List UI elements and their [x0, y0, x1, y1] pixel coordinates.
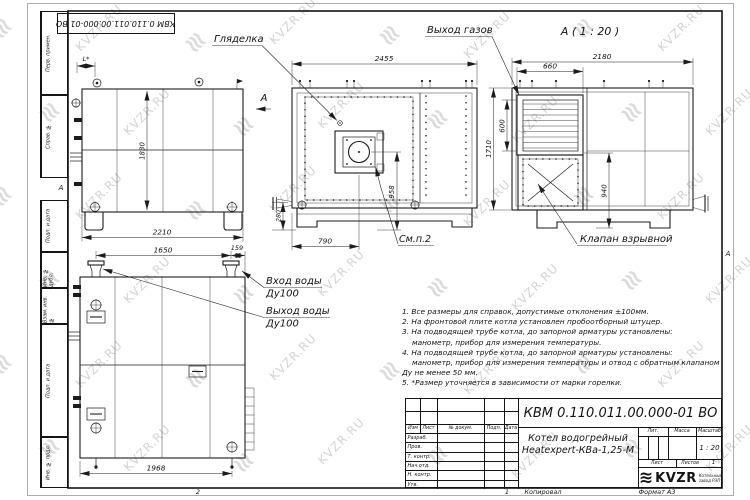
format-label: Формат А3	[638, 488, 675, 496]
dim-label-940: 940	[601, 184, 609, 198]
sheets-value: 1	[704, 459, 723, 467]
sheets-label: Листов	[676, 459, 704, 467]
support-foot	[224, 212, 242, 230]
flange-stub	[273, 197, 292, 210]
drawing-sheet: ≋KVZR.RU≋KVZR.RU≋KVZR.RU≋KVZR.RU≋KVZR.RU…	[0, 0, 750, 500]
logo-coil-icon: ≋	[639, 470, 653, 487]
row-t-kontr: Т. контр.	[408, 452, 438, 461]
dim-label-1710: 1710	[485, 140, 493, 158]
top-studs	[519, 80, 664, 88]
ladder-bracket	[245, 388, 254, 450]
product-name-line2: Heatexpert-КВа-1,25-М	[518, 444, 638, 457]
view-plan: 1650 159 1968 Вход воды Ду100 Выход воды…	[68, 244, 330, 477]
gas-outlet-louver	[517, 95, 583, 155]
dim-label-159: 159	[231, 244, 243, 252]
sheet-label: Лист	[638, 459, 676, 467]
label-explosion-valve: Клапан взрывной	[580, 234, 673, 245]
row-nach-otd: Нач.отд.	[408, 461, 438, 470]
row-n-kontr: Н. контр.	[408, 470, 438, 480]
stamp-vzam-inv: Взам. инв. №	[40, 288, 68, 324]
stamp-sprav-no: Справ. №	[40, 95, 68, 178]
dim-label-1830: 1830	[139, 142, 147, 160]
label-water-outlet-dn: Ду100	[265, 319, 299, 330]
label-sight-glass: Гляделка	[214, 34, 264, 45]
row-razrab: Разраб.	[408, 433, 438, 442]
dim-label-2455: 2455	[375, 54, 394, 63]
view-front: 2455 958 280 790 Гляделка См.п.2	[212, 34, 477, 250]
dim-label-790: 790	[318, 237, 332, 246]
dim-label-L: L*	[83, 55, 91, 63]
section-mark-label: А	[260, 93, 268, 104]
stamp-podp-data-1: Подп. и дата	[40, 200, 68, 252]
logo-subtext-line2: завод РЭП	[699, 478, 721, 483]
col-izm: Изм	[406, 424, 420, 433]
company-logo: ≋ KVZR Котельный завод РЭП	[638, 467, 723, 489]
stamp-perv-primen: Перв. примен.	[40, 11, 68, 95]
dim-label-1650: 1650	[154, 246, 173, 255]
note-line: 1. Все размеры для справок, допустимые о…	[402, 307, 720, 317]
label-see-note: См.п.2	[399, 234, 431, 245]
water-outlet-nozzle	[88, 261, 104, 277]
dim-label-600: 600	[499, 119, 507, 133]
explosion-valve-panel	[518, 155, 583, 210]
col-podp: Подп.	[484, 424, 504, 433]
note-line: Ду не менее 50 мм.	[402, 368, 720, 378]
stamp-podp-data-2: Подп. и дата	[40, 324, 68, 437]
note-line: 3. На подводящей трубе котла, до запорно…	[402, 327, 720, 337]
stamp-inv-podl: Инв. № подл.	[40, 437, 68, 488]
label-water-inlet: Вход воды	[266, 276, 322, 287]
lit-label: Лит.	[638, 427, 668, 436]
zone-marker-right: А	[725, 250, 731, 258]
scale-label: Масштаб	[696, 427, 723, 436]
row-prov: Пров.	[408, 442, 438, 452]
note-line: 4. На подводящей трубе котла, до запорно…	[402, 348, 720, 358]
label-gas-outlet: Выход газов	[427, 25, 493, 36]
note-line: манометр, прибор для измерения температу…	[402, 338, 720, 348]
col-data: Дата	[504, 424, 518, 433]
scale-value: 1 : 20	[696, 436, 723, 459]
note-line: 2. На фронтовой плите котла установлен п…	[402, 317, 720, 327]
view-a-title: А ( 1 : 20 )	[560, 25, 619, 38]
dim-label-2210: 2210	[153, 228, 172, 237]
dim-label-2180: 2180	[593, 52, 612, 61]
notes-block: 1. Все размеры для справок, допустимые о…	[402, 307, 720, 389]
doc-number-rotated: КВМ 0.110.011.00.000-01 ВО	[56, 19, 175, 28]
copy-number: 1	[505, 488, 509, 496]
view-rear: 2180 660 600 1710 940 А ( 1 : 20 ) Выход…	[425, 25, 708, 246]
label-water-outlet: Выход воды	[266, 306, 330, 317]
kopiroval-label: Копировал	[524, 488, 561, 496]
title-block: Изм Лист № докум. Подп. Дата Разраб. Про…	[405, 398, 722, 488]
title-doc-number: КВМ 0.110.011.00.000-01 ВО	[518, 399, 723, 427]
stamp-inv-dubl: Инв. № дубл.	[40, 252, 68, 288]
flange-stub	[693, 195, 708, 213]
dim-label-1968: 1968	[147, 464, 166, 473]
water-inlet-nozzle	[223, 261, 239, 277]
row-utv: Утв.	[408, 480, 438, 489]
view-side: L* 1830 2210 А	[70, 55, 271, 242]
top-studs	[299, 80, 473, 88]
note-line: 5. *Размер уточняется в зависимости от м…	[402, 378, 720, 388]
stud-flag	[237, 79, 243, 84]
mass-label: Масса	[668, 427, 696, 436]
base-frame	[297, 208, 472, 227]
fold-mark: 2	[196, 488, 200, 496]
col-dokum: № докум.	[437, 424, 484, 433]
dim-label-660: 660	[543, 62, 557, 71]
dim-label-280: 280	[276, 210, 283, 222]
label-water-inlet-dn: Ду100	[265, 289, 299, 300]
dim-label-958: 958	[388, 185, 396, 199]
logo-wordmark: KVZR	[655, 471, 697, 486]
col-list: Лист	[420, 424, 437, 433]
note-line: манометр, прибор для измерения температу…	[402, 358, 720, 368]
zone-marker-left: А	[58, 184, 64, 192]
doc-number-box: КВМ 0.110.011.00.000-01 ВО	[57, 13, 175, 34]
support-foot	[85, 212, 103, 230]
